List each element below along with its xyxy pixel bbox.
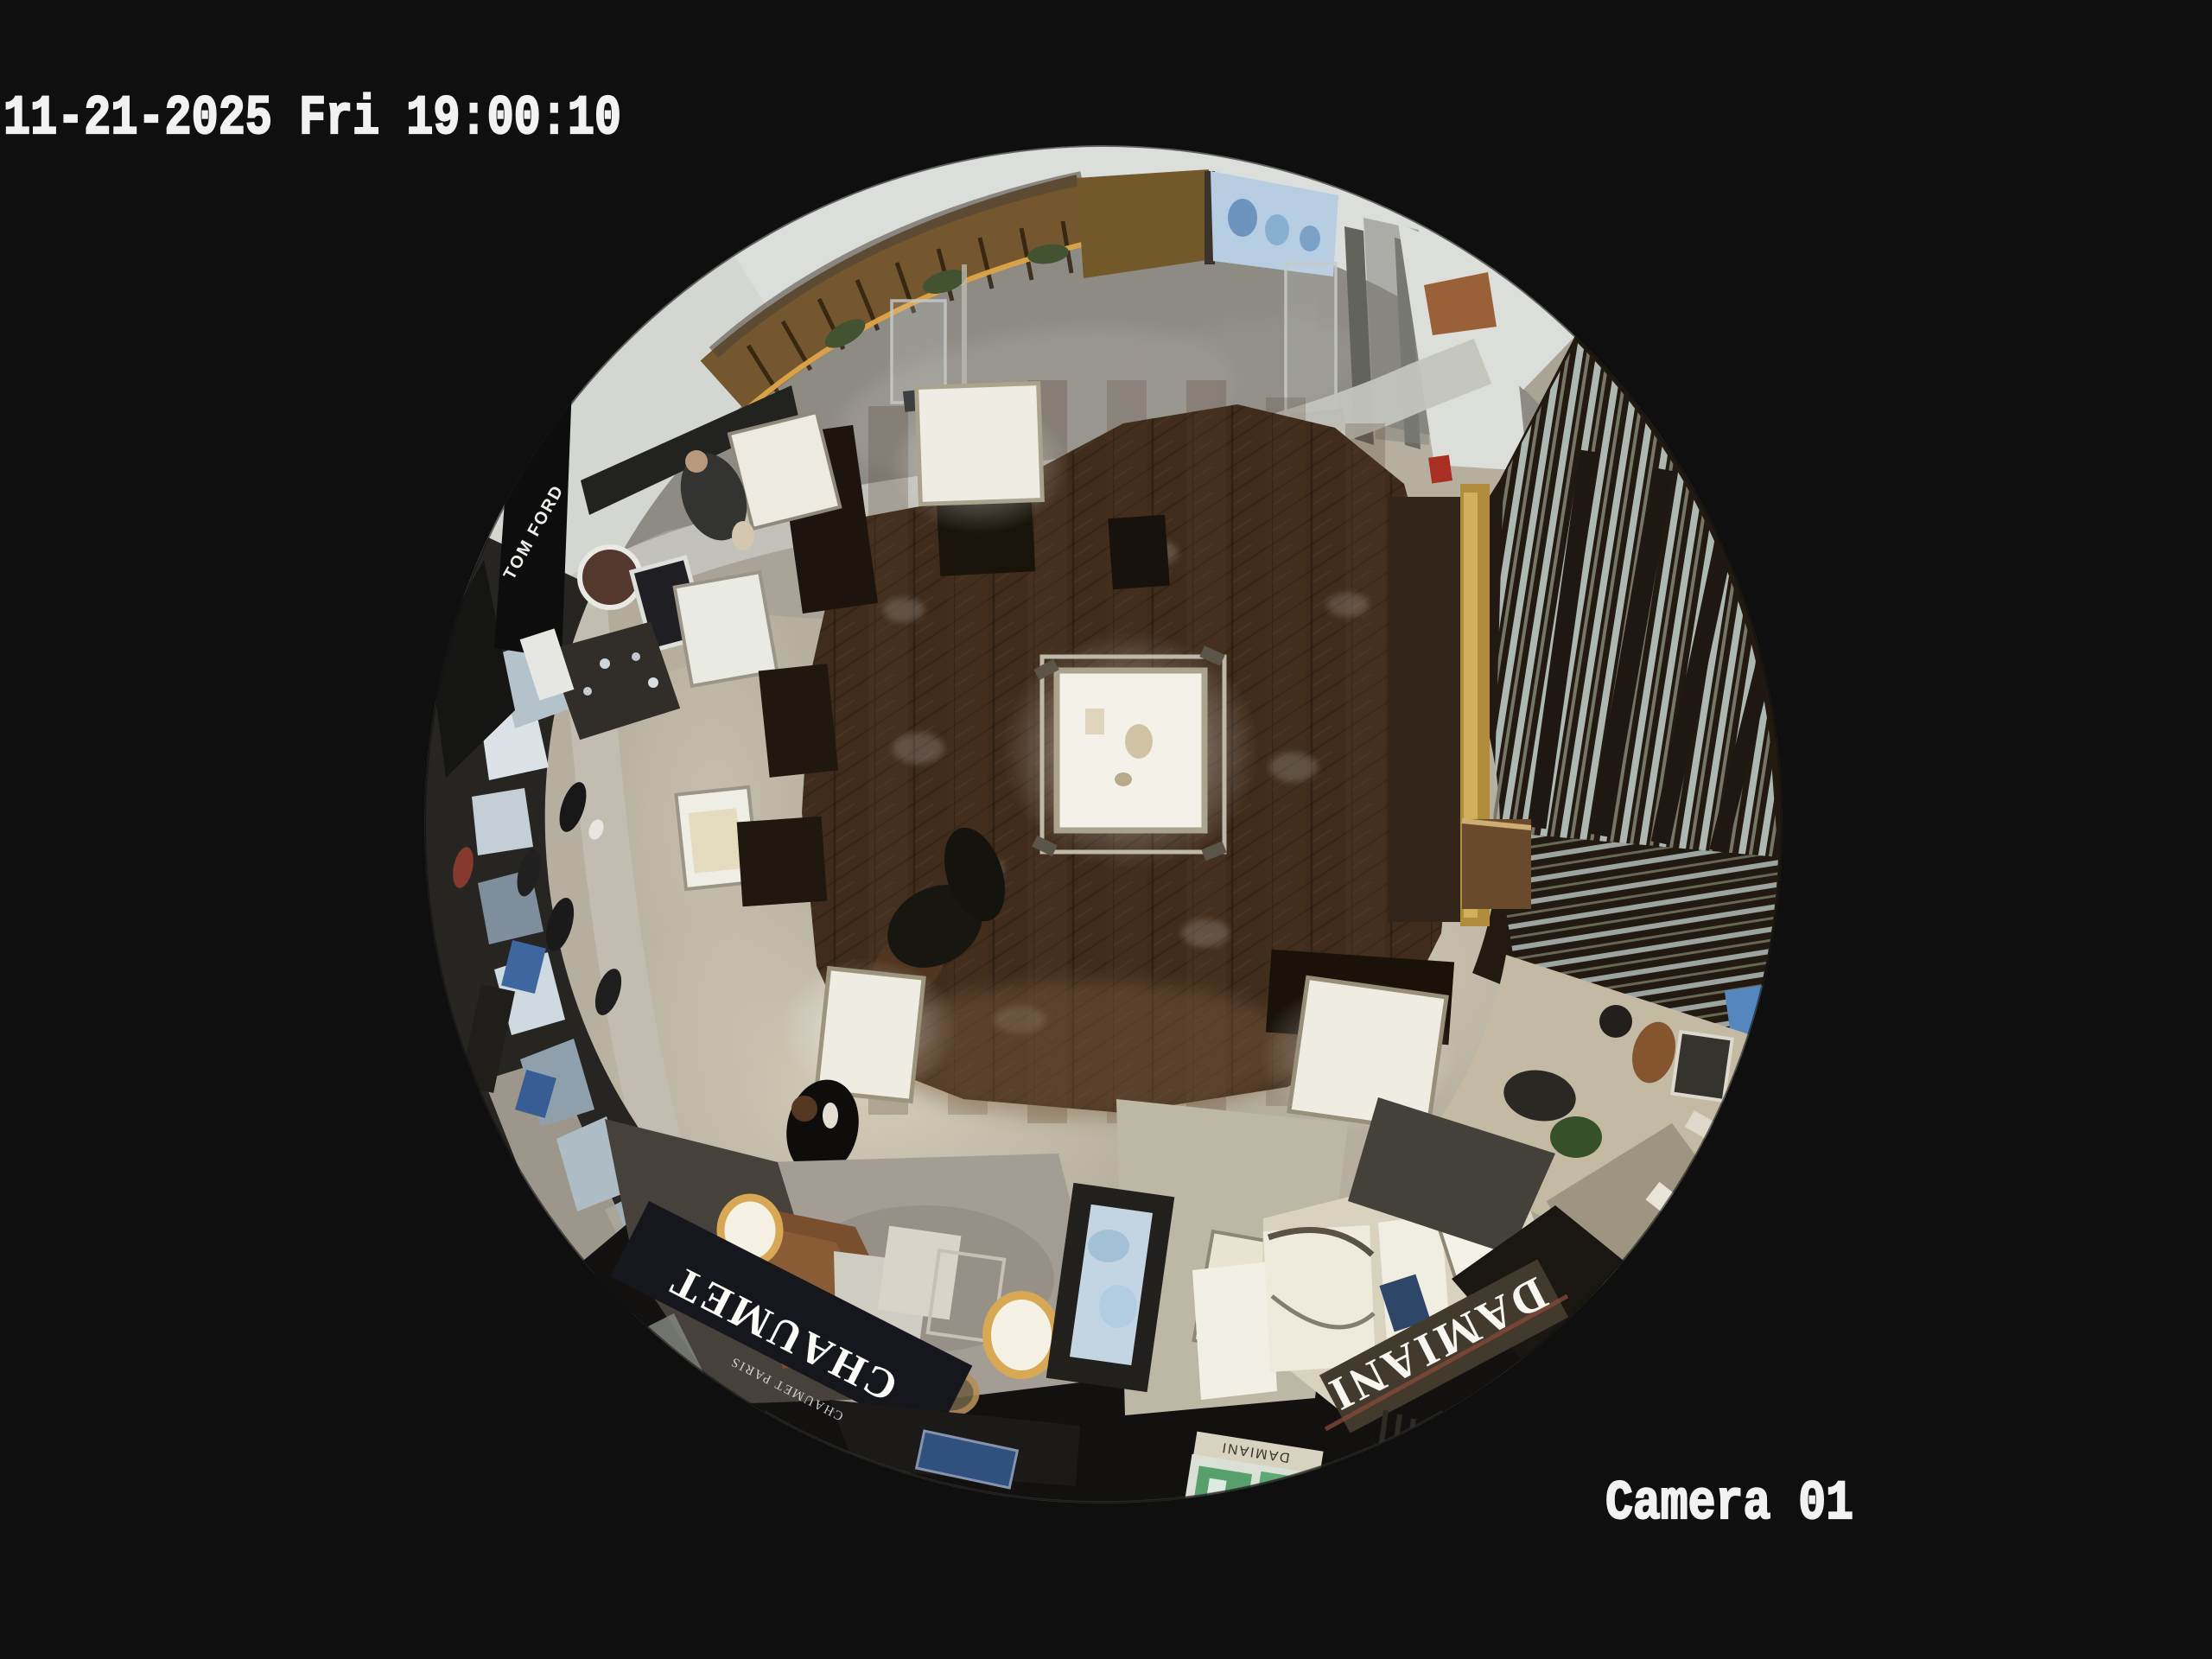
svg-text:Camera 01: Camera 01 bbox=[1605, 1473, 1853, 1535]
svg-text:11-21-2025 Fri 19:00:10: 11-21-2025 Fri 19:00:10 bbox=[3, 88, 621, 150]
